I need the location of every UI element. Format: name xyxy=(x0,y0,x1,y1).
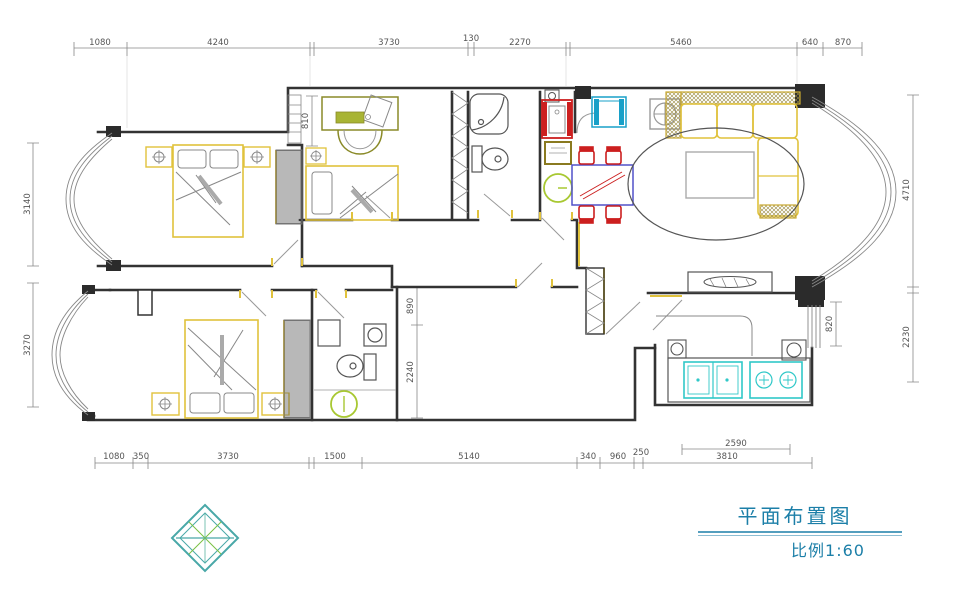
dim-bot-7: 960 xyxy=(610,452,626,462)
dim-bot-1: 1080 xyxy=(103,452,125,462)
wardrobe xyxy=(276,150,302,224)
floor-plan-page: 1080 4240 3730 130 2270 5460 640 870 108… xyxy=(0,0,960,589)
dim-top-5: 2270 xyxy=(509,38,531,48)
dim-bot-2: 350 xyxy=(133,452,149,462)
coffee-table xyxy=(686,152,754,198)
dim-top-3: 3730 xyxy=(378,38,400,48)
dim-hall-length: 2240 xyxy=(406,361,416,383)
dim-bot-3: 3730 xyxy=(217,452,239,462)
dim-bot-8: 250 xyxy=(633,448,649,458)
dim-left-2: 3270 xyxy=(23,334,33,356)
dim-top-8: 870 xyxy=(835,38,851,48)
dim-top-4: 130 xyxy=(463,34,479,44)
drawing-title: 平面布置图 xyxy=(738,504,853,528)
dim-hall-width: 890 xyxy=(406,298,416,314)
dim-right-1: 4710 xyxy=(902,179,912,201)
dim-left-1: 3140 xyxy=(23,193,33,215)
dim-top-1: 1080 xyxy=(89,38,111,48)
dim-kitchen-window: 820 xyxy=(825,316,835,332)
dim-bot-9: 3810 xyxy=(716,452,738,462)
sink-side xyxy=(542,102,547,136)
wardrobe xyxy=(284,320,310,418)
dim-study-window: 810 xyxy=(301,113,311,129)
dim-top-2: 4240 xyxy=(207,38,229,48)
floor-plan-canvas: 1080 4240 3730 130 2270 5460 640 870 108… xyxy=(0,0,960,589)
dim-bot-6: 340 xyxy=(580,452,596,462)
sofa-back xyxy=(681,92,800,104)
wall-stub xyxy=(138,290,152,315)
dim-right-2: 2230 xyxy=(902,326,912,348)
dim-bot-inner: 2590 xyxy=(725,439,747,449)
sofa-arm xyxy=(760,205,796,218)
keyboard xyxy=(336,112,364,123)
sink-side xyxy=(567,102,572,136)
dim-bot-5: 5140 xyxy=(458,452,480,462)
dim-top-7: 640 xyxy=(802,38,818,48)
dim-top-6: 5460 xyxy=(670,38,692,48)
dim-bot-4: 1500 xyxy=(324,452,346,462)
drawing-scale: 比例1:60 xyxy=(791,541,865,560)
sofa-arm xyxy=(666,92,681,138)
